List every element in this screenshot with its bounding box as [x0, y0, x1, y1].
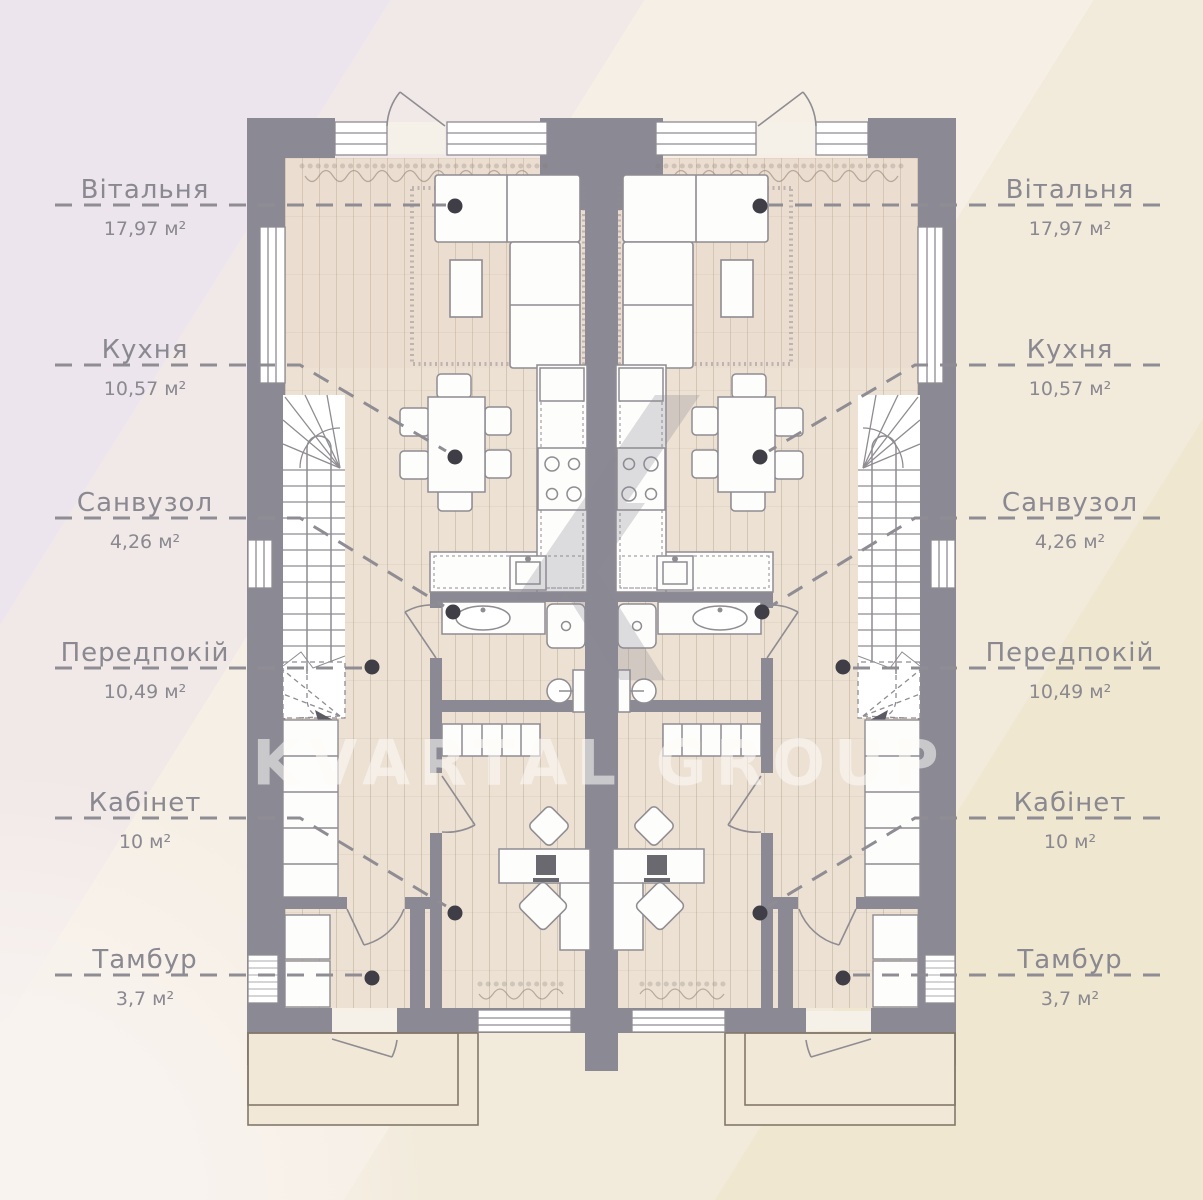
coffee-table [721, 260, 753, 317]
room-area: 10,57 м² [980, 378, 1160, 400]
brand-logo-watermark [485, 385, 720, 705]
coffee-table [450, 260, 482, 317]
terrace-door-threshold [387, 122, 445, 154]
staircase [858, 395, 920, 724]
room-label-vestibule-right: Тамбур 3,7 м² [980, 937, 1160, 1010]
room-area: 3,7 м² [55, 988, 235, 1010]
computer [647, 855, 667, 875]
room-label-kitchen-right: Кухня 10,57 м² [980, 327, 1160, 400]
room-area: 10,49 м² [55, 681, 235, 703]
room-area: 10,57 м² [55, 378, 235, 400]
living-room-furniture [412, 175, 584, 368]
room-label-living-left: Вітальня 17,97 м² [55, 167, 235, 240]
room-label-hall-left: Передпокій 10,49 м² [55, 630, 235, 703]
living-room-furniture [619, 175, 791, 368]
room-area: 4,26 м² [55, 531, 235, 553]
room-name: Вітальня [55, 167, 235, 205]
computer [536, 855, 556, 875]
floor-plan-stage: KVARTAL GROUP Вітальня 17,97 м² Кухня 10… [0, 0, 1203, 1200]
room-area: 10 м² [55, 831, 235, 853]
room-area: 17,97 м² [55, 218, 235, 240]
entry-door-threshold [806, 1011, 871, 1031]
room-name: Кухня [55, 327, 235, 365]
entrance-porch [248, 1033, 478, 1125]
room-name: Вітальня [980, 167, 1160, 205]
room-area: 10 м² [980, 831, 1160, 853]
room-name: Тамбур [980, 937, 1160, 975]
room-area: 10,49 м² [980, 681, 1160, 703]
guest-chair [528, 805, 570, 847]
guest-chair [633, 805, 675, 847]
room-name: Кабінет [980, 780, 1160, 818]
room-label-bathroom-left: Санвузол 4,26 м² [55, 480, 235, 553]
room-label-vestibule-left: Тамбур 3,7 м² [55, 937, 235, 1010]
tambour-closet [873, 915, 918, 1007]
room-label-kitchen-left: Кухня 10,57 м² [55, 327, 235, 400]
staircase [283, 395, 345, 724]
room-name: Передпокій [55, 630, 235, 668]
room-label-bathroom-right: Санвузол 4,26 м² [980, 480, 1160, 553]
room-area: 17,97 м² [980, 218, 1160, 240]
dining-table [428, 397, 485, 492]
brand-text-watermark: KVARTAL GROUP [252, 727, 947, 800]
tambour-closet [285, 915, 330, 1007]
room-name: Санвузол [55, 480, 235, 518]
dining-table [718, 397, 775, 492]
room-label-living-right: Вітальня 17,97 м² [980, 167, 1160, 240]
room-name: Кабінет [55, 780, 235, 818]
terrace-door-threshold [758, 122, 816, 154]
room-name: Санвузол [980, 480, 1160, 518]
room-name: Тамбур [55, 937, 235, 975]
room-area: 3,7 м² [980, 988, 1160, 1010]
room-name: Передпокій [980, 630, 1160, 668]
entry-door-threshold [332, 1011, 397, 1031]
room-area: 4,26 м² [980, 531, 1160, 553]
room-label-hall-right: Передпокій 10,49 м² [980, 630, 1160, 703]
room-label-office-left: Кабінет 10 м² [55, 780, 235, 853]
room-name: Кухня [980, 327, 1160, 365]
room-label-office-right: Кабінет 10 м² [980, 780, 1160, 853]
entrance-porch [725, 1033, 955, 1125]
